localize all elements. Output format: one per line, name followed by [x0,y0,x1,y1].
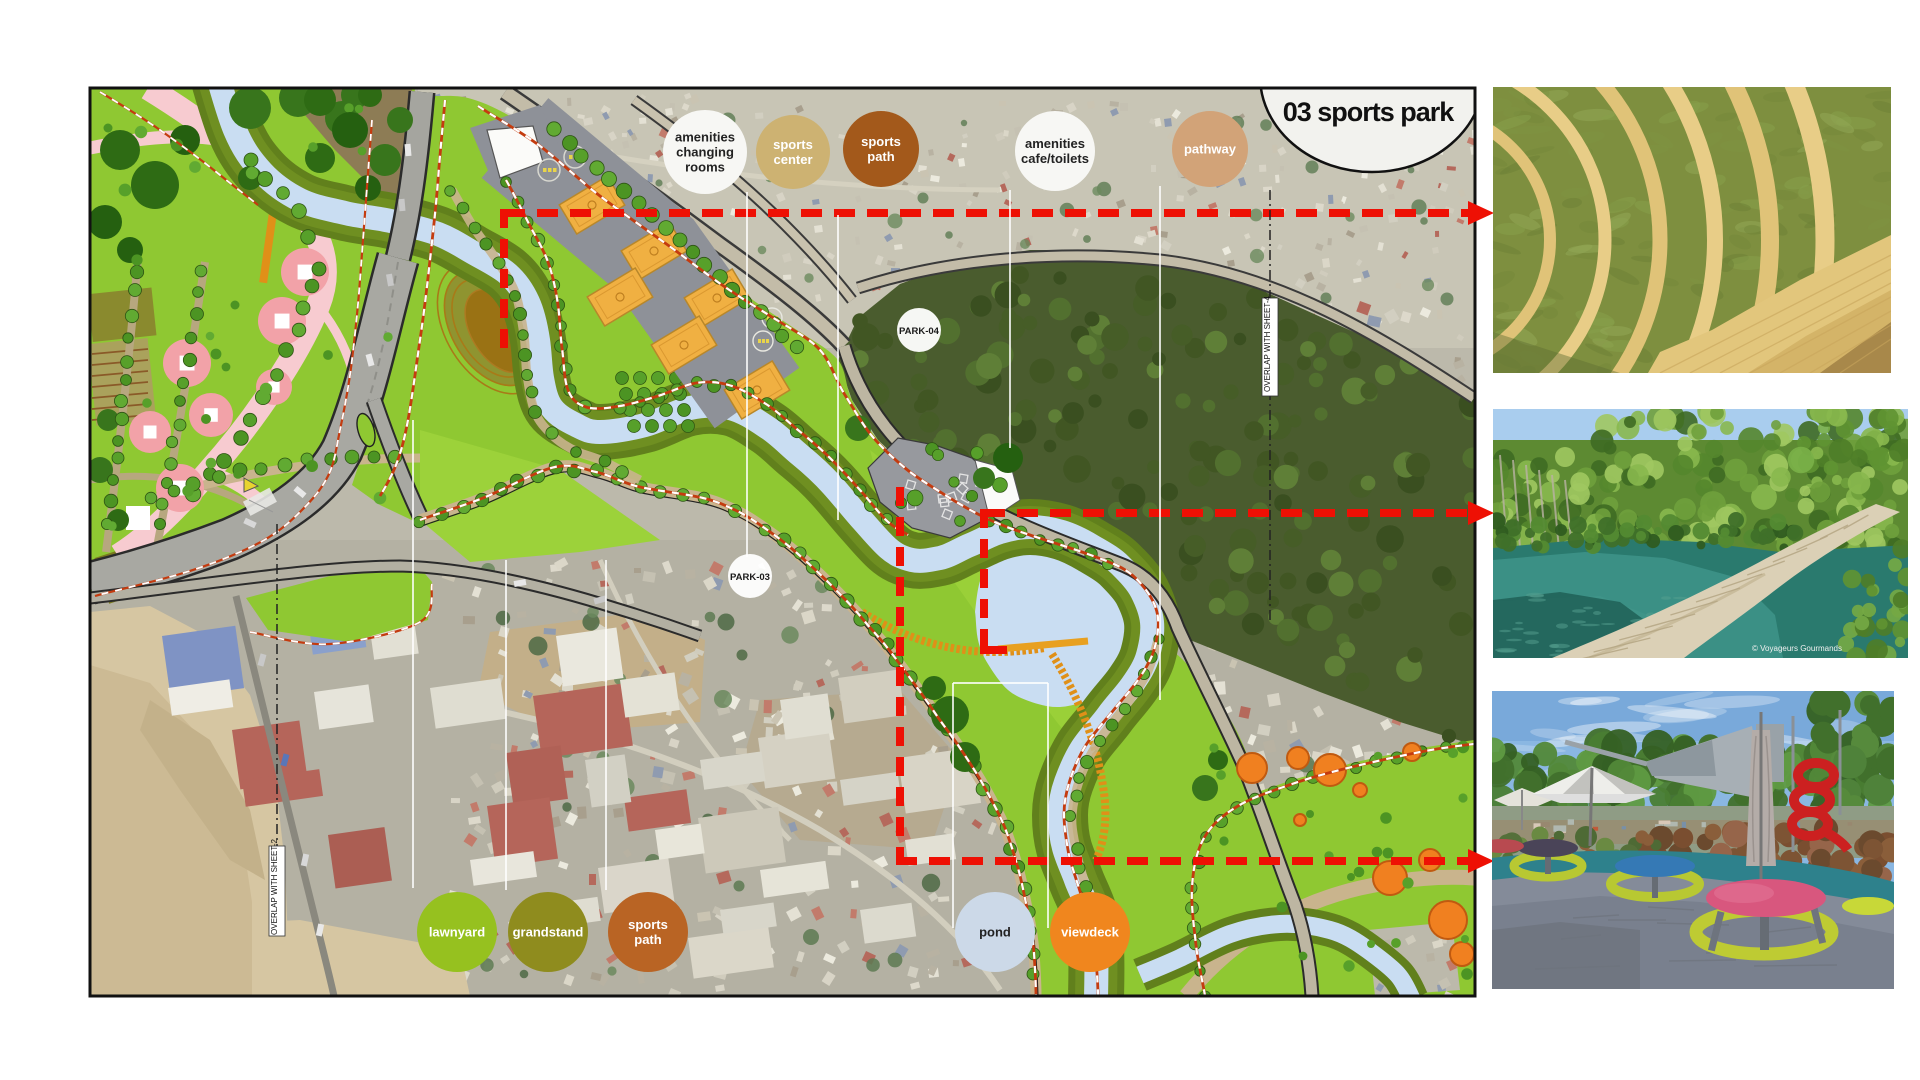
svg-text:cafe/toilets: cafe/toilets [1021,151,1089,166]
svg-text:sports: sports [773,137,813,152]
svg-text:amenities: amenities [675,130,735,145]
svg-text:grandstand: grandstand [513,925,584,940]
svg-text:pond: pond [979,925,1011,940]
svg-text:rooms: rooms [685,160,725,175]
svg-text:pathway: pathway [1184,142,1237,157]
svg-text:© Voyageurs Gourmands: © Voyageurs Gourmands [1752,644,1842,653]
svg-text:PARK-04: PARK-04 [899,326,940,337]
svg-text:sports: sports [861,134,901,149]
svg-text:path: path [634,932,662,947]
svg-text:amenities: amenities [1025,136,1085,151]
svg-text:03 sports park: 03 sports park [1283,97,1456,127]
svg-text:sports: sports [628,917,668,932]
svg-text:OVERLAP WITH SHEET-4: OVERLAP WITH SHEET-4 [1263,296,1272,392]
svg-text:PARK-03: PARK-03 [730,572,770,583]
svg-text:OVERLAP WITH SHEET-2: OVERLAP WITH SHEET-2 [270,839,279,935]
svg-text:center: center [773,152,812,167]
svg-text:viewdeck: viewdeck [1061,925,1120,940]
svg-text:changing: changing [676,145,734,160]
svg-text:path: path [867,149,895,164]
svg-text:lawnyard: lawnyard [429,925,485,940]
